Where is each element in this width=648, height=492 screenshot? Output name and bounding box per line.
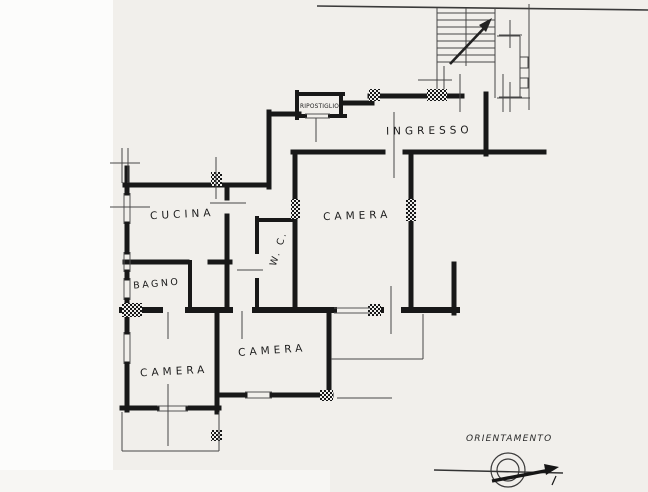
label-orientamento: ORIENTAMENTO	[466, 434, 552, 444]
floorplan-canvas: RIPOSTIGLIO INGRESSO CAMERA CUCINA BAGNO…	[0, 0, 648, 492]
label-ripostiglio: RIPOSTIGLIO	[300, 102, 339, 110]
scan-background	[0, 0, 648, 492]
label-camera-top: CAMERA	[323, 209, 392, 223]
floorplan-svg: RIPOSTIGLIO INGRESSO CAMERA CUCINA BAGNO…	[0, 0, 648, 492]
label-ingresso: INGRESSO	[386, 124, 473, 138]
